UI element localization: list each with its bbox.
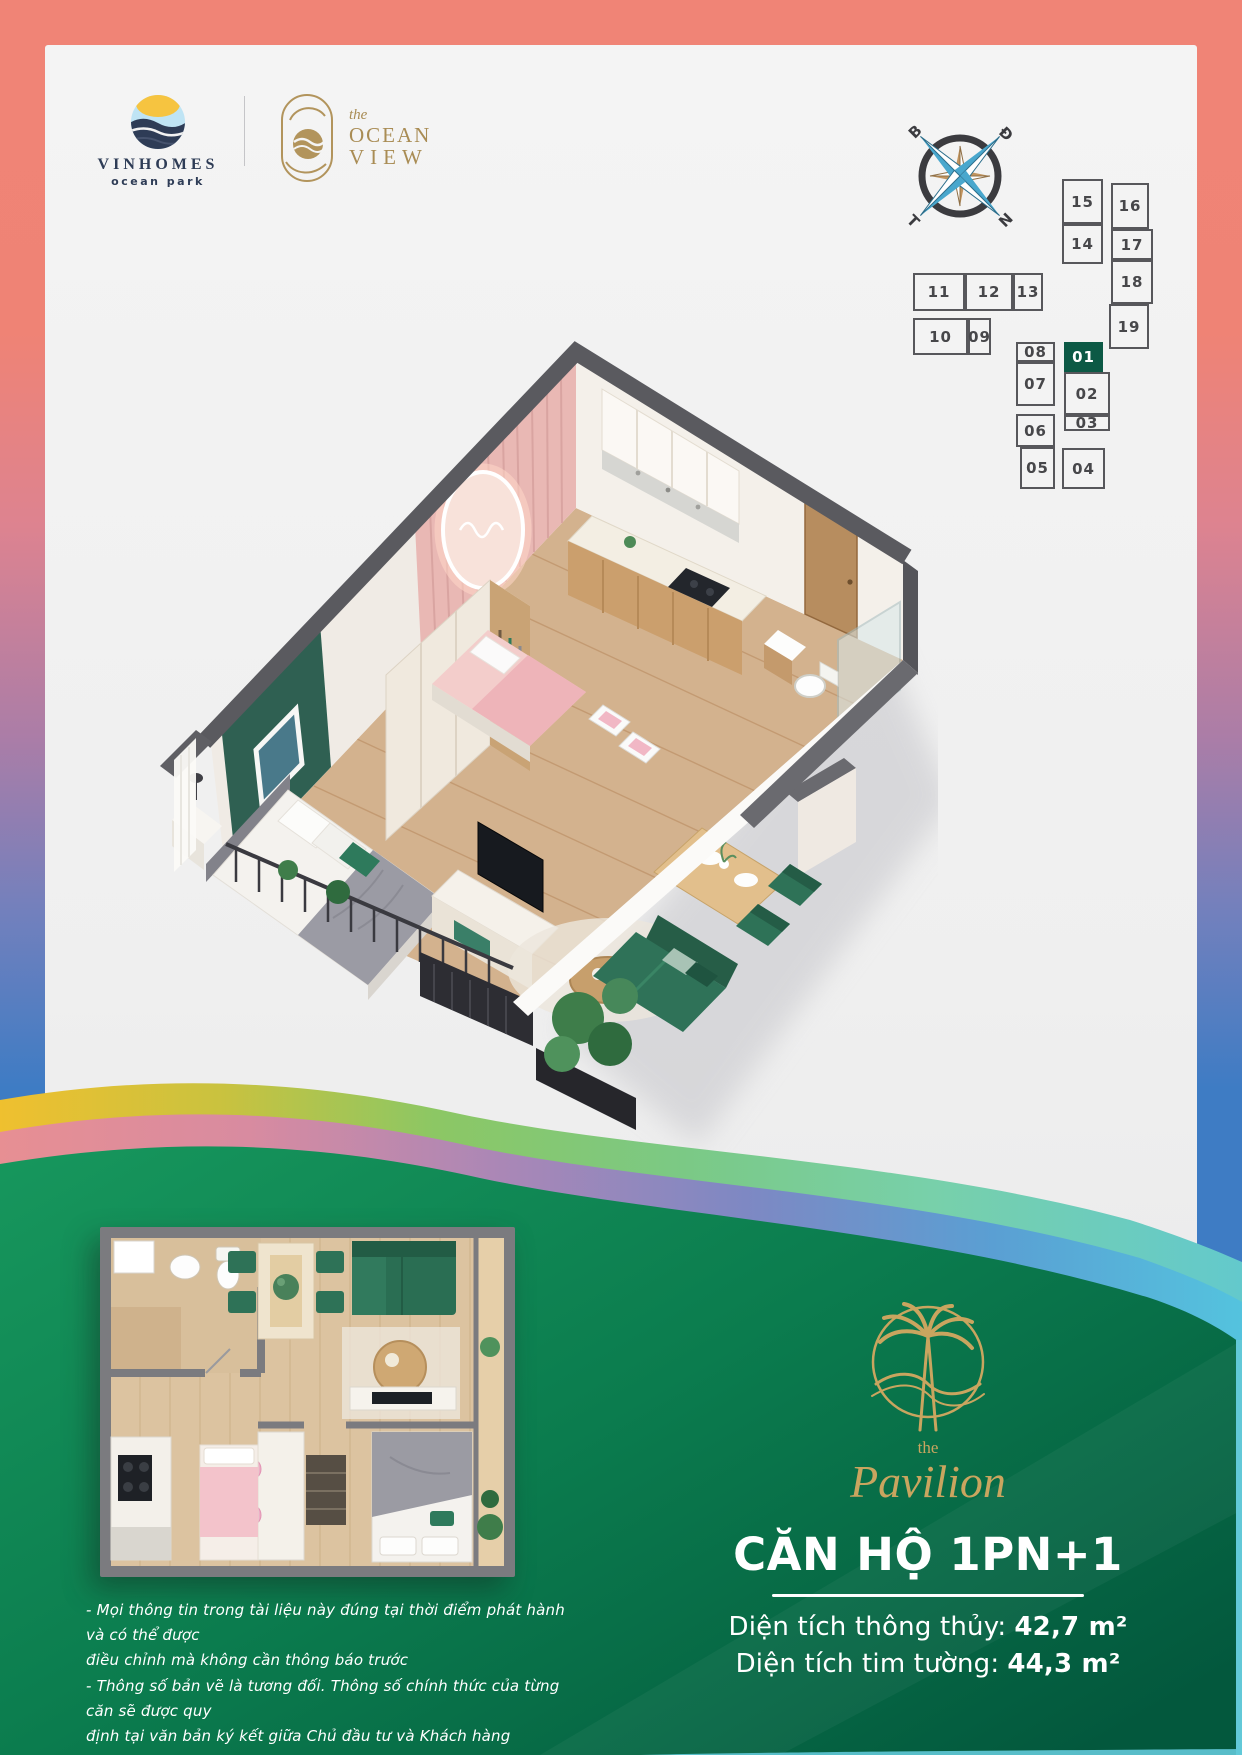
brochure-page: { "header": { "vinhomes": { "name": "VIN…	[0, 0, 1242, 1755]
site-plan-unit-16: 16	[1111, 183, 1149, 229]
apartment-3d-render	[138, 210, 938, 1150]
site-plan-unit-09: 09	[968, 318, 991, 355]
site-plan-unit-02: 02	[1064, 372, 1110, 415]
apartment-title: CĂN HỘ 1PN+1	[698, 1528, 1158, 1581]
site-plan-unit-15: 15	[1062, 179, 1103, 224]
disclaimer-line: - Thông số bản vẽ là tương đối. Thông số…	[86, 1674, 572, 1724]
disclaimer-line: định tại văn bản ký kết giữa Chủ đầu tư …	[86, 1724, 572, 1749]
pavilion-name: Pavilion	[698, 1458, 1158, 1506]
site-plan-unit-19: 19	[1109, 304, 1149, 349]
area-gross-label: Diện tích tim tường:	[736, 1649, 1000, 1679]
site-plan-unit-14: 14	[1062, 224, 1103, 264]
site-plan-unit-18: 18	[1111, 260, 1153, 304]
site-plan-unit-08: 08	[1016, 342, 1055, 362]
site-plan-unit-13: 13	[1013, 273, 1043, 311]
floor-plan-2d	[100, 1227, 515, 1577]
pavilion-block: the Pavilion CĂN HỘ 1PN+1 Diện tích thôn…	[698, 1296, 1158, 1683]
pavilion-prefix: the	[698, 1438, 1158, 1458]
disclaimer-line: điều chỉnh mà không cần thông báo trước	[86, 1648, 572, 1673]
site-plan-unit-07: 07	[1016, 362, 1055, 406]
area-row-clear: Diện tích thông thủy:42,7 m²	[698, 1609, 1158, 1646]
site-plan-unit-04: 04	[1062, 448, 1105, 489]
pavilion-palm-icon	[838, 1296, 1018, 1434]
disclaimer: - Mọi thông tin trong tài liệu này đúng …	[86, 1598, 572, 1749]
area-clear-label: Diện tích thông thủy:	[729, 1612, 1007, 1642]
site-plan-unit-03: 03	[1064, 415, 1110, 431]
disclaimer-line: - Mọi thông tin trong tài liệu này đúng …	[86, 1598, 572, 1648]
area-gross-value: 44,3 m²	[1007, 1649, 1120, 1679]
site-plan-unit-05: 05	[1020, 447, 1055, 489]
area-row-gross: Diện tích tim tường:44,3 m²	[698, 1646, 1158, 1683]
site-plan-unit-17: 17	[1111, 229, 1153, 260]
site-plan-unit-12: 12	[965, 273, 1013, 311]
site-plan-unit-01: 01	[1064, 342, 1103, 372]
site-plan-unit-06: 06	[1016, 414, 1055, 447]
title-divider	[772, 1594, 1084, 1597]
area-clear-value: 42,7 m²	[1014, 1612, 1127, 1642]
